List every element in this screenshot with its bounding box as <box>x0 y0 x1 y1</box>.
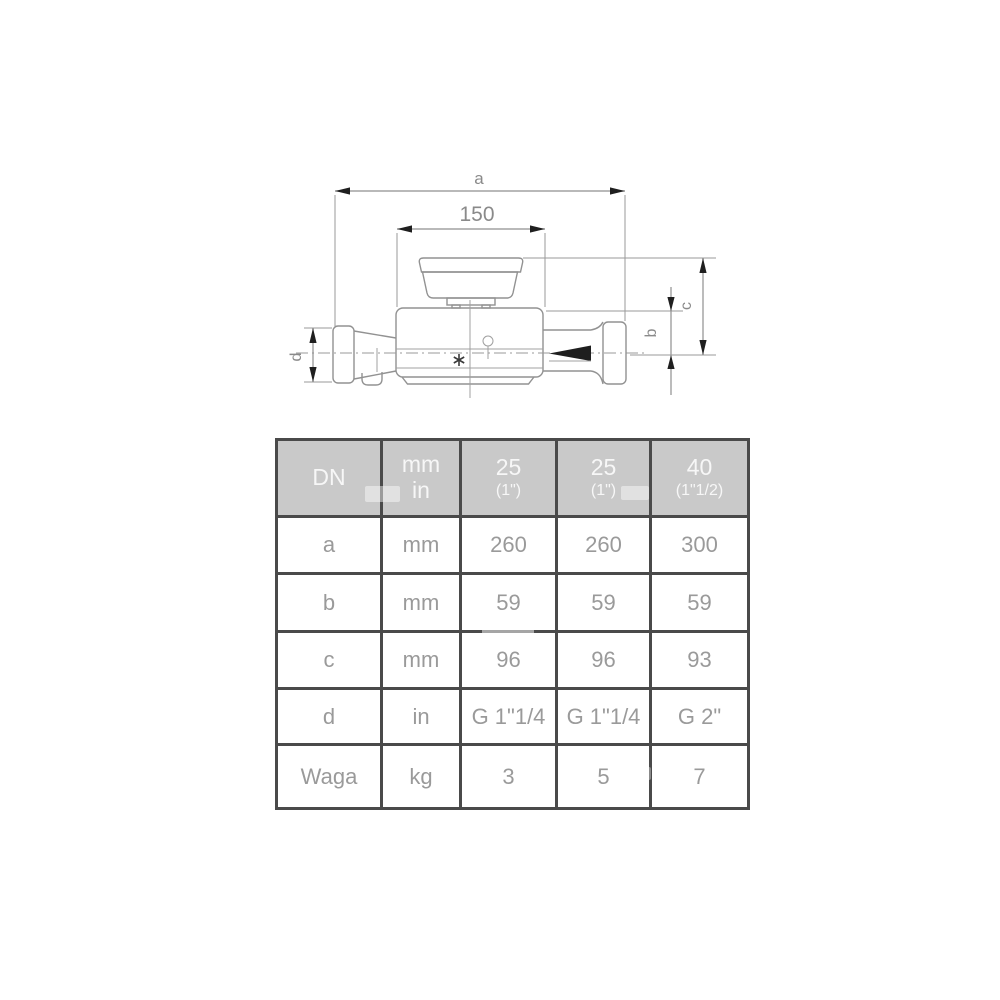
cell-value: G 1"1/4 <box>461 689 557 745</box>
arrowhead-up-icon <box>309 328 316 343</box>
cell-value: 96 <box>461 632 557 689</box>
row-unit: mm <box>382 517 461 574</box>
meter-register <box>419 258 522 308</box>
dimension-d-label: d <box>288 353 305 362</box>
row-label: Waga <box>277 745 382 809</box>
row-label: c <box>277 632 382 689</box>
cell-value: G 1"1/4 <box>557 689 651 745</box>
table-row-waga: Waga kg 3 5 7 <box>277 745 749 809</box>
row-unit: mm <box>382 574 461 632</box>
header-size-25b: 25 (1") <box>557 440 651 517</box>
dimension-b-label: b <box>643 328 660 337</box>
arrowhead-left-icon <box>397 225 412 232</box>
dimension-d: d <box>288 328 332 382</box>
table-row-a: a mm 260 260 300 <box>277 517 749 574</box>
arrowhead-up-icon <box>699 258 706 273</box>
header-units: mm in <box>382 440 461 517</box>
header-size-25a: 25 (1") <box>461 440 557 517</box>
table-header-row: DN mm in 25 (1") 25 (1") 40 (1"1/2) <box>277 440 749 517</box>
table-row-c: c mm 96 96 93 <box>277 632 749 689</box>
cell-value: 300 <box>651 517 749 574</box>
row-unit: mm <box>382 632 461 689</box>
row-label: b <box>277 574 382 632</box>
dimension-b: b <box>546 287 683 395</box>
header-unit-in: in <box>383 478 459 504</box>
row-unit: in <box>382 689 461 745</box>
dimension-c: c <box>523 258 716 355</box>
row-label: a <box>277 517 382 574</box>
arrowhead-left-icon <box>335 187 350 194</box>
row-unit: kg <box>382 745 461 809</box>
cell-value: 59 <box>557 574 651 632</box>
arrowhead-down-icon <box>309 367 316 382</box>
arrowhead-down-icon <box>667 297 674 311</box>
dimension-c-label: c <box>678 302 695 310</box>
table-row-d: d in G 1"1/4 G 1"1/4 G 2" <box>277 689 749 745</box>
dimension-150-label: 150 <box>459 203 494 226</box>
header-dn-label: DN <box>278 465 380 491</box>
left-coupling <box>333 326 396 385</box>
dimension-150: 150 <box>397 203 545 307</box>
arrowhead-right-icon <box>530 225 545 232</box>
arrowhead-right-icon <box>610 187 625 194</box>
cell-value: 3 <box>461 745 557 809</box>
header-dn: DN <box>277 440 382 517</box>
header-size-40: 40 (1"1/2) <box>651 440 749 517</box>
seal-mark-icon <box>454 354 464 366</box>
meter-body <box>396 300 543 398</box>
cell-value: 5 <box>557 745 651 809</box>
cell-value: 93 <box>651 632 749 689</box>
cell-value: 7 <box>651 745 749 809</box>
cell-value: 59 <box>461 574 557 632</box>
cell-value: 59 <box>651 574 749 632</box>
row-label: d <box>277 689 382 745</box>
header-unit-mm: mm <box>383 452 459 478</box>
cell-value: G 2" <box>651 689 749 745</box>
dimension-a: a <box>335 169 625 327</box>
table-row-b: b mm 59 59 59 <box>277 574 749 632</box>
flow-direction-arrow-icon <box>549 346 591 362</box>
arrowhead-down-icon <box>699 340 706 355</box>
dimensions-spec-table: DN mm in 25 (1") 25 (1") 40 (1"1/2) a mm… <box>275 438 750 810</box>
spec-table-container: DN mm in 25 (1") 25 (1") 40 (1"1/2) a mm… <box>275 438 750 810</box>
cell-value: 260 <box>557 517 651 574</box>
dimension-a-label: a <box>474 169 484 188</box>
cell-value: 260 <box>461 517 557 574</box>
cell-value: 96 <box>557 632 651 689</box>
arrowhead-up-icon <box>667 355 674 369</box>
